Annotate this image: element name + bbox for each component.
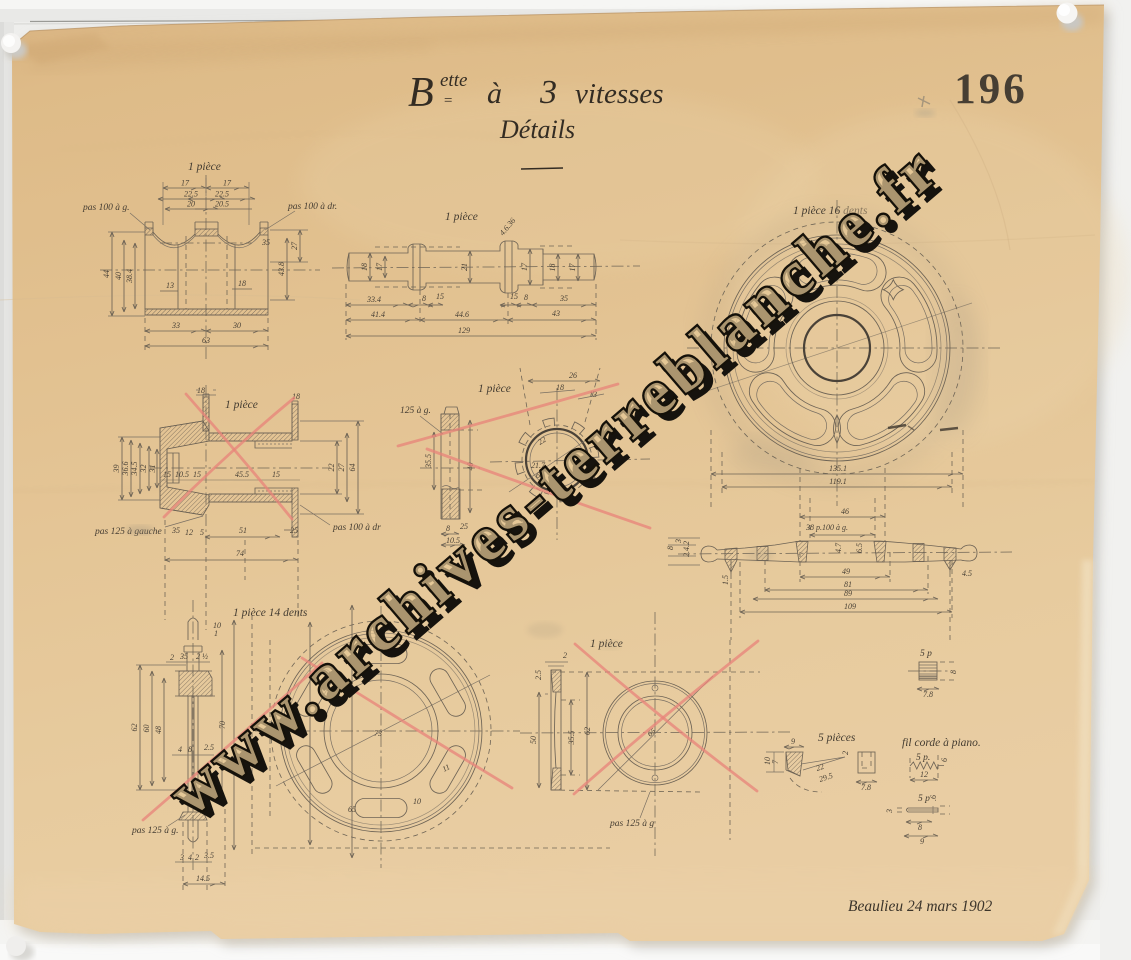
svg-text:51: 51 (239, 526, 247, 535)
svg-text:18: 18 (556, 383, 564, 392)
svg-text:43.8: 43.8 (277, 262, 286, 276)
svg-text:38 p.100 à g.: 38 p.100 à g. (805, 523, 848, 532)
svg-text:à: à (487, 77, 502, 110)
svg-text:1 pièce: 1 pièce (225, 399, 258, 411)
svg-text:60: 60 (142, 725, 151, 733)
svg-text:4: 4 (188, 853, 192, 862)
svg-text:135.1: 135.1 (829, 464, 847, 473)
svg-text:2: 2 (195, 853, 199, 862)
svg-text:2 ½: 2 ½ (196, 652, 208, 661)
svg-text:4.5: 4.5 (962, 569, 972, 578)
svg-text:1 pièce: 1 pièce (478, 383, 511, 395)
svg-text:35: 35 (179, 652, 188, 661)
svg-text:14.5: 14.5 (196, 874, 210, 883)
svg-text:31: 31 (148, 465, 157, 474)
svg-text:30: 30 (232, 321, 241, 330)
svg-text:15: 15 (272, 470, 280, 479)
svg-text:35.5: 35.5 (424, 454, 433, 469)
svg-text:6: 6 (940, 758, 949, 762)
svg-text:B: B (408, 70, 434, 116)
svg-text:74: 74 (236, 549, 244, 558)
svg-text:fil corde à piano.: fil corde à piano. (902, 737, 981, 749)
svg-text:15: 15 (193, 470, 201, 479)
svg-text:21: 21 (460, 263, 469, 271)
svg-text:7.8: 7.8 (861, 783, 871, 792)
svg-text:50: 50 (529, 736, 538, 744)
svg-text:3: 3 (885, 809, 894, 814)
svg-text:9: 9 (920, 837, 924, 846)
svg-text:9: 9 (791, 737, 795, 746)
svg-text:20: 20 (187, 200, 195, 209)
svg-text:27: 27 (290, 241, 299, 250)
svg-text:34.5: 34.5 (130, 462, 139, 477)
svg-text:17: 17 (568, 263, 577, 272)
svg-text:63: 63 (202, 336, 210, 345)
svg-text:41.4: 41.4 (371, 310, 385, 319)
svg-text:62: 62 (130, 724, 139, 732)
svg-text:3.5: 3.5 (203, 851, 214, 860)
svg-text:17: 17 (223, 179, 232, 188)
svg-text:10.5: 10.5 (175, 470, 189, 479)
svg-text:Détails: Détails (499, 115, 575, 144)
svg-text:119.1: 119.1 (829, 477, 846, 486)
svg-text:8: 8 (918, 823, 922, 832)
svg-text:pas 100 à g.: pas 100 à g. (82, 203, 129, 213)
svg-text:38.4: 38.4 (125, 269, 134, 284)
svg-text:17: 17 (520, 262, 529, 271)
svg-text:10: 10 (413, 797, 421, 806)
svg-text:26: 26 (569, 371, 577, 380)
svg-text:36.6: 36.6 (121, 462, 130, 477)
svg-text:2: 2 (170, 653, 174, 662)
svg-text:15: 15 (510, 292, 518, 301)
svg-text:6.5: 6.5 (855, 543, 864, 553)
svg-text:65: 65 (348, 805, 356, 814)
svg-text:44.6: 44.6 (455, 310, 469, 319)
svg-text:4.7: 4.7 (834, 542, 843, 553)
svg-text:73: 73 (374, 729, 382, 738)
svg-text:5 p.: 5 p. (916, 753, 930, 763)
svg-text:=: = (443, 93, 453, 109)
svg-text:22: 22 (327, 464, 336, 472)
svg-text:1 pièce: 1 pièce (188, 161, 221, 173)
svg-text:2.4.2: 2.4.2 (682, 541, 691, 557)
svg-text:pas 125 à g: pas 125 à g (609, 819, 654, 829)
svg-text:81: 81 (844, 580, 852, 589)
svg-text:196: 196 (954, 66, 1028, 113)
svg-text:7.8: 7.8 (923, 690, 933, 699)
svg-text:vitesses: vitesses (575, 78, 664, 110)
svg-text:15: 15 (436, 292, 444, 301)
svg-text:12: 12 (920, 770, 928, 779)
svg-text:5 pièces: 5 pièces (818, 732, 856, 744)
svg-text:1.5: 1.5 (721, 575, 730, 585)
svg-text:13: 13 (166, 281, 174, 290)
svg-text:35: 35 (261, 238, 270, 247)
svg-text:17: 17 (375, 262, 384, 271)
svg-text:35: 35 (559, 294, 568, 303)
svg-text:2: 2 (841, 751, 850, 755)
svg-text:49: 49 (842, 567, 850, 576)
svg-text:1 pièce: 1 pièce (445, 211, 478, 223)
svg-text:48: 48 (154, 726, 163, 734)
svg-text:44: 44 (102, 270, 111, 278)
svg-text:33: 33 (171, 321, 180, 330)
svg-text:.6: .6 (929, 795, 938, 801)
svg-text:33.4: 33.4 (366, 295, 381, 304)
svg-text:5: 5 (200, 528, 204, 537)
svg-text:8: 8 (524, 293, 528, 302)
svg-text:18: 18 (548, 264, 557, 272)
svg-text:64: 64 (348, 464, 357, 472)
svg-text:8: 8 (422, 294, 426, 303)
svg-text:40: 40 (114, 272, 123, 280)
svg-text:18: 18 (197, 386, 205, 395)
svg-text:46: 46 (841, 507, 849, 516)
svg-text:8: 8 (666, 546, 675, 550)
svg-text:43: 43 (552, 309, 560, 318)
svg-text:27: 27 (337, 463, 346, 472)
svg-text:22.5: 22.5 (215, 190, 229, 199)
svg-text:12: 12 (185, 528, 193, 537)
svg-text:109: 109 (844, 602, 856, 611)
svg-text:18: 18 (238, 279, 246, 288)
svg-text:1: 1 (214, 629, 218, 638)
svg-text:5 p: 5 p (920, 649, 932, 659)
svg-text:32: 32 (139, 465, 148, 474)
svg-text:15: 15 (163, 470, 171, 479)
svg-text:25: 25 (290, 526, 298, 535)
svg-text:1 pièce 14 dents: 1 pièce 14 dents (233, 607, 308, 619)
svg-text:pas 125 à g.: pas 125 à g. (131, 826, 178, 836)
svg-text:125 à g.: 125 à g. (400, 406, 431, 416)
svg-text:22.5: 22.5 (184, 190, 198, 199)
svg-text:3: 3 (539, 74, 557, 111)
svg-text:18: 18 (360, 263, 369, 271)
svg-text:8: 8 (949, 670, 958, 674)
svg-text:17: 17 (181, 179, 190, 188)
svg-text:pas 100 à dr.: pas 100 à dr. (287, 202, 337, 212)
svg-text:89: 89 (844, 589, 852, 598)
svg-text:2.5: 2.5 (534, 670, 543, 680)
svg-text:20.5: 20.5 (215, 200, 229, 209)
svg-text:39: 39 (112, 465, 121, 474)
svg-text:45.5: 45.5 (235, 470, 249, 479)
svg-text:35: 35 (171, 526, 180, 535)
svg-text:2: 2 (563, 651, 567, 660)
svg-text:pas 100 à dr: pas 100 à dr (332, 523, 381, 533)
svg-text:62: 62 (583, 727, 592, 735)
svg-text:Beaulieu 24 mars 1902: Beaulieu 24 mars 1902 (848, 898, 992, 915)
svg-text:129: 129 (458, 326, 470, 335)
svg-text:ette: ette (440, 70, 467, 91)
